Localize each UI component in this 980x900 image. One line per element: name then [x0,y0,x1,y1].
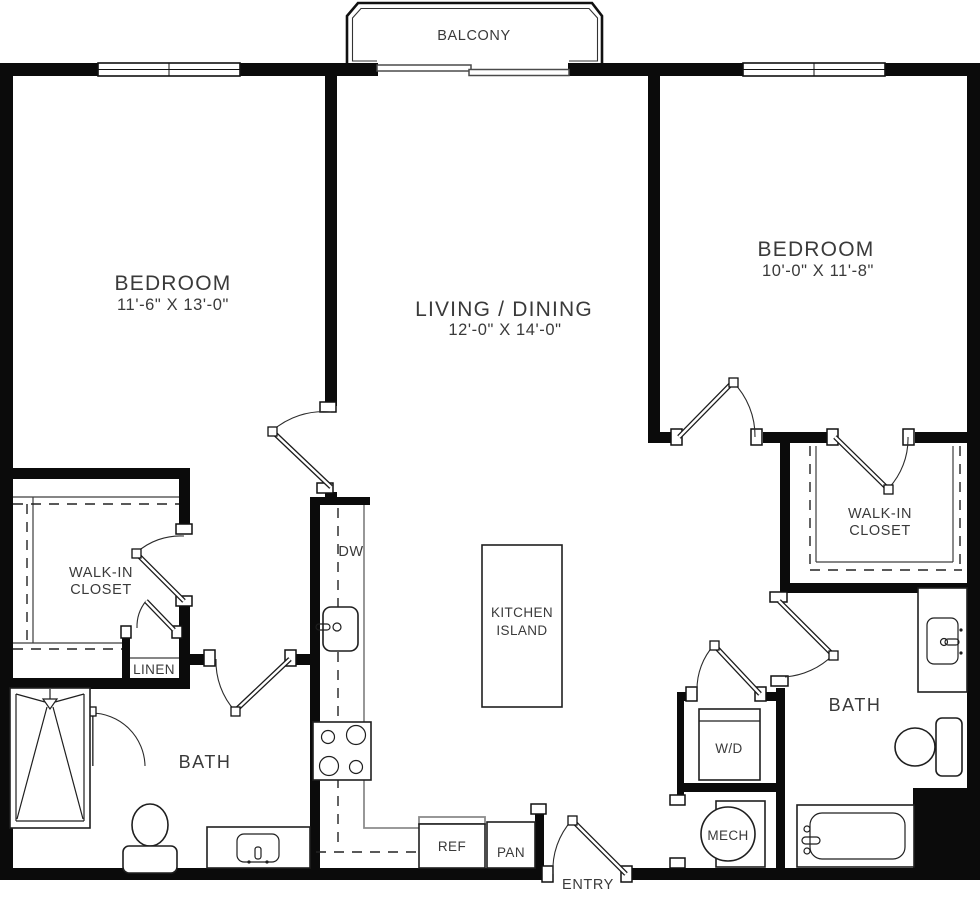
wall [677,783,783,792]
door-jamb [176,524,192,534]
bedroom-left-dims: 11'-6" X 13'-0" [117,296,229,314]
wall [766,692,778,701]
wall [915,432,980,443]
door-jamb [670,858,685,868]
door-jamb [770,592,787,602]
walk-in-closet-left-label-line1: WALK-IN [69,565,133,581]
living-dining-label: LIVING / DINING [415,298,593,321]
wall [535,812,544,872]
refrigerator-label: REF [438,839,466,854]
wall [310,497,370,505]
door-bath-right [779,601,838,677]
wall [122,632,130,678]
stove [313,722,371,780]
wall [967,63,980,880]
toilet-right [895,718,962,776]
balcony: BALCONY [347,3,602,66]
bedroom-left-label: BEDROOM [115,272,232,295]
wall [296,654,320,665]
door-bath-left [216,659,290,716]
upper-cabinet-dash-line [316,508,418,852]
balcony-sliding-door [377,65,569,76]
wall [913,788,980,880]
window-bedroom-left [98,63,240,76]
walls [0,63,980,880]
walk-in-closet-left-label-line2: CLOSET [70,582,132,598]
floor-plan-svg: BALCONY [0,0,980,900]
toilet-left [123,804,177,873]
wall [885,63,980,76]
living-dining-dims: 12'-0" X 14'-0" [448,321,561,339]
wall [677,701,684,797]
windows [98,63,885,76]
vanity-left [207,827,310,868]
kitchen-island-label-line2: ISLAND [496,623,547,638]
wall [10,468,190,479]
walk-in-closet-right-label-line1: WALK-IN [848,506,912,522]
pantry-label: PAN [497,845,525,860]
wall [763,432,829,443]
wall [568,63,745,76]
door-jamb [320,402,336,412]
washer-dryer-label: W/D [715,741,742,756]
window-bedroom-right [743,63,885,76]
kitchen-island-label-line1: KITCHEN [491,605,553,620]
door-jamb [686,687,697,701]
mechanical-label: MECH [707,828,748,843]
door-jamb [204,650,215,666]
door-jamb [751,429,762,445]
shower [10,688,90,828]
wall [179,606,190,689]
door-entry [553,816,626,874]
door-jamb [531,804,546,814]
door-linen [137,601,174,630]
bedroom-right-dims: 10'-0" X 11'-8" [762,262,874,280]
wall [0,63,98,76]
wall [648,432,674,443]
door-jamb [121,626,131,638]
door-jamb [542,866,553,882]
vanity-right [918,588,967,692]
kitchen-sink [316,607,358,651]
wall [0,868,544,880]
door-jamb [670,795,685,805]
wall [780,440,790,593]
floor-plan-page: BALCONY [0,0,980,900]
wall [677,868,684,880]
walk-in-closet-right-label-line2: CLOSET [849,523,911,539]
wall [310,505,320,880]
door-closet-left [132,536,184,601]
kitchen-counter [316,505,419,852]
linen-label: LINEN [133,662,175,677]
door-bedroom-right [679,378,755,437]
wall [648,76,660,443]
bath-right-label: BATH [829,695,882,715]
door-shower [87,707,145,766]
wall [179,468,190,526]
bath-left-label: BATH [179,752,232,772]
dishwasher-label: DW [338,544,363,560]
entry-label: ENTRY [562,877,614,893]
door-closet-right [835,437,908,494]
wall [240,63,378,76]
bedroom-right-label: BEDROOM [758,238,875,261]
balcony-label: BALCONY [437,28,511,44]
door-bedroom-left [268,412,331,487]
wall [325,76,337,406]
bathtub [797,805,914,867]
door-washer-dryer [697,641,760,694]
